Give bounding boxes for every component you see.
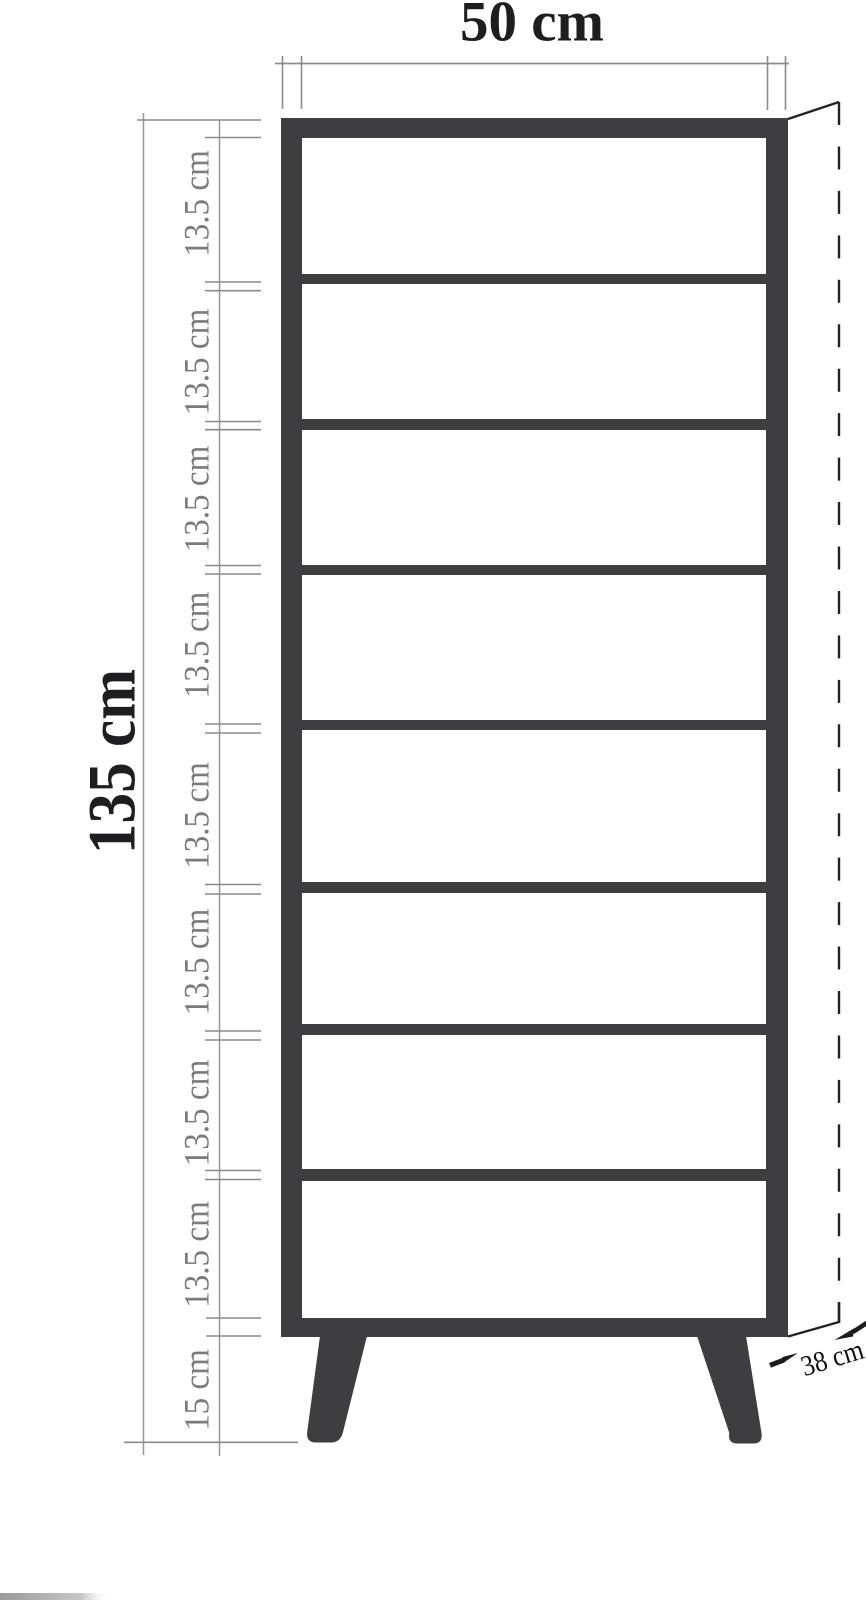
- svg-text:13.5 cm: 13.5 cm: [177, 1060, 217, 1167]
- svg-text:13.5 cm: 13.5 cm: [177, 446, 217, 553]
- svg-text:13.5 cm: 13.5 cm: [177, 150, 217, 257]
- svg-text:13.5 cm: 13.5 cm: [177, 909, 217, 1016]
- svg-text:13.5 cm: 13.5 cm: [177, 592, 217, 699]
- svg-text:13.5 cm: 13.5 cm: [177, 309, 217, 416]
- svg-text:38 cm: 38 cm: [797, 1333, 866, 1382]
- svg-text:135 cm: 135 cm: [74, 669, 150, 854]
- svg-text:50 cm: 50 cm: [460, 0, 604, 54]
- svg-text:15 cm: 15 cm: [177, 1349, 217, 1431]
- svg-text:13.5 cm: 13.5 cm: [177, 762, 217, 869]
- svg-text:13.5 cm: 13.5 cm: [177, 1201, 217, 1308]
